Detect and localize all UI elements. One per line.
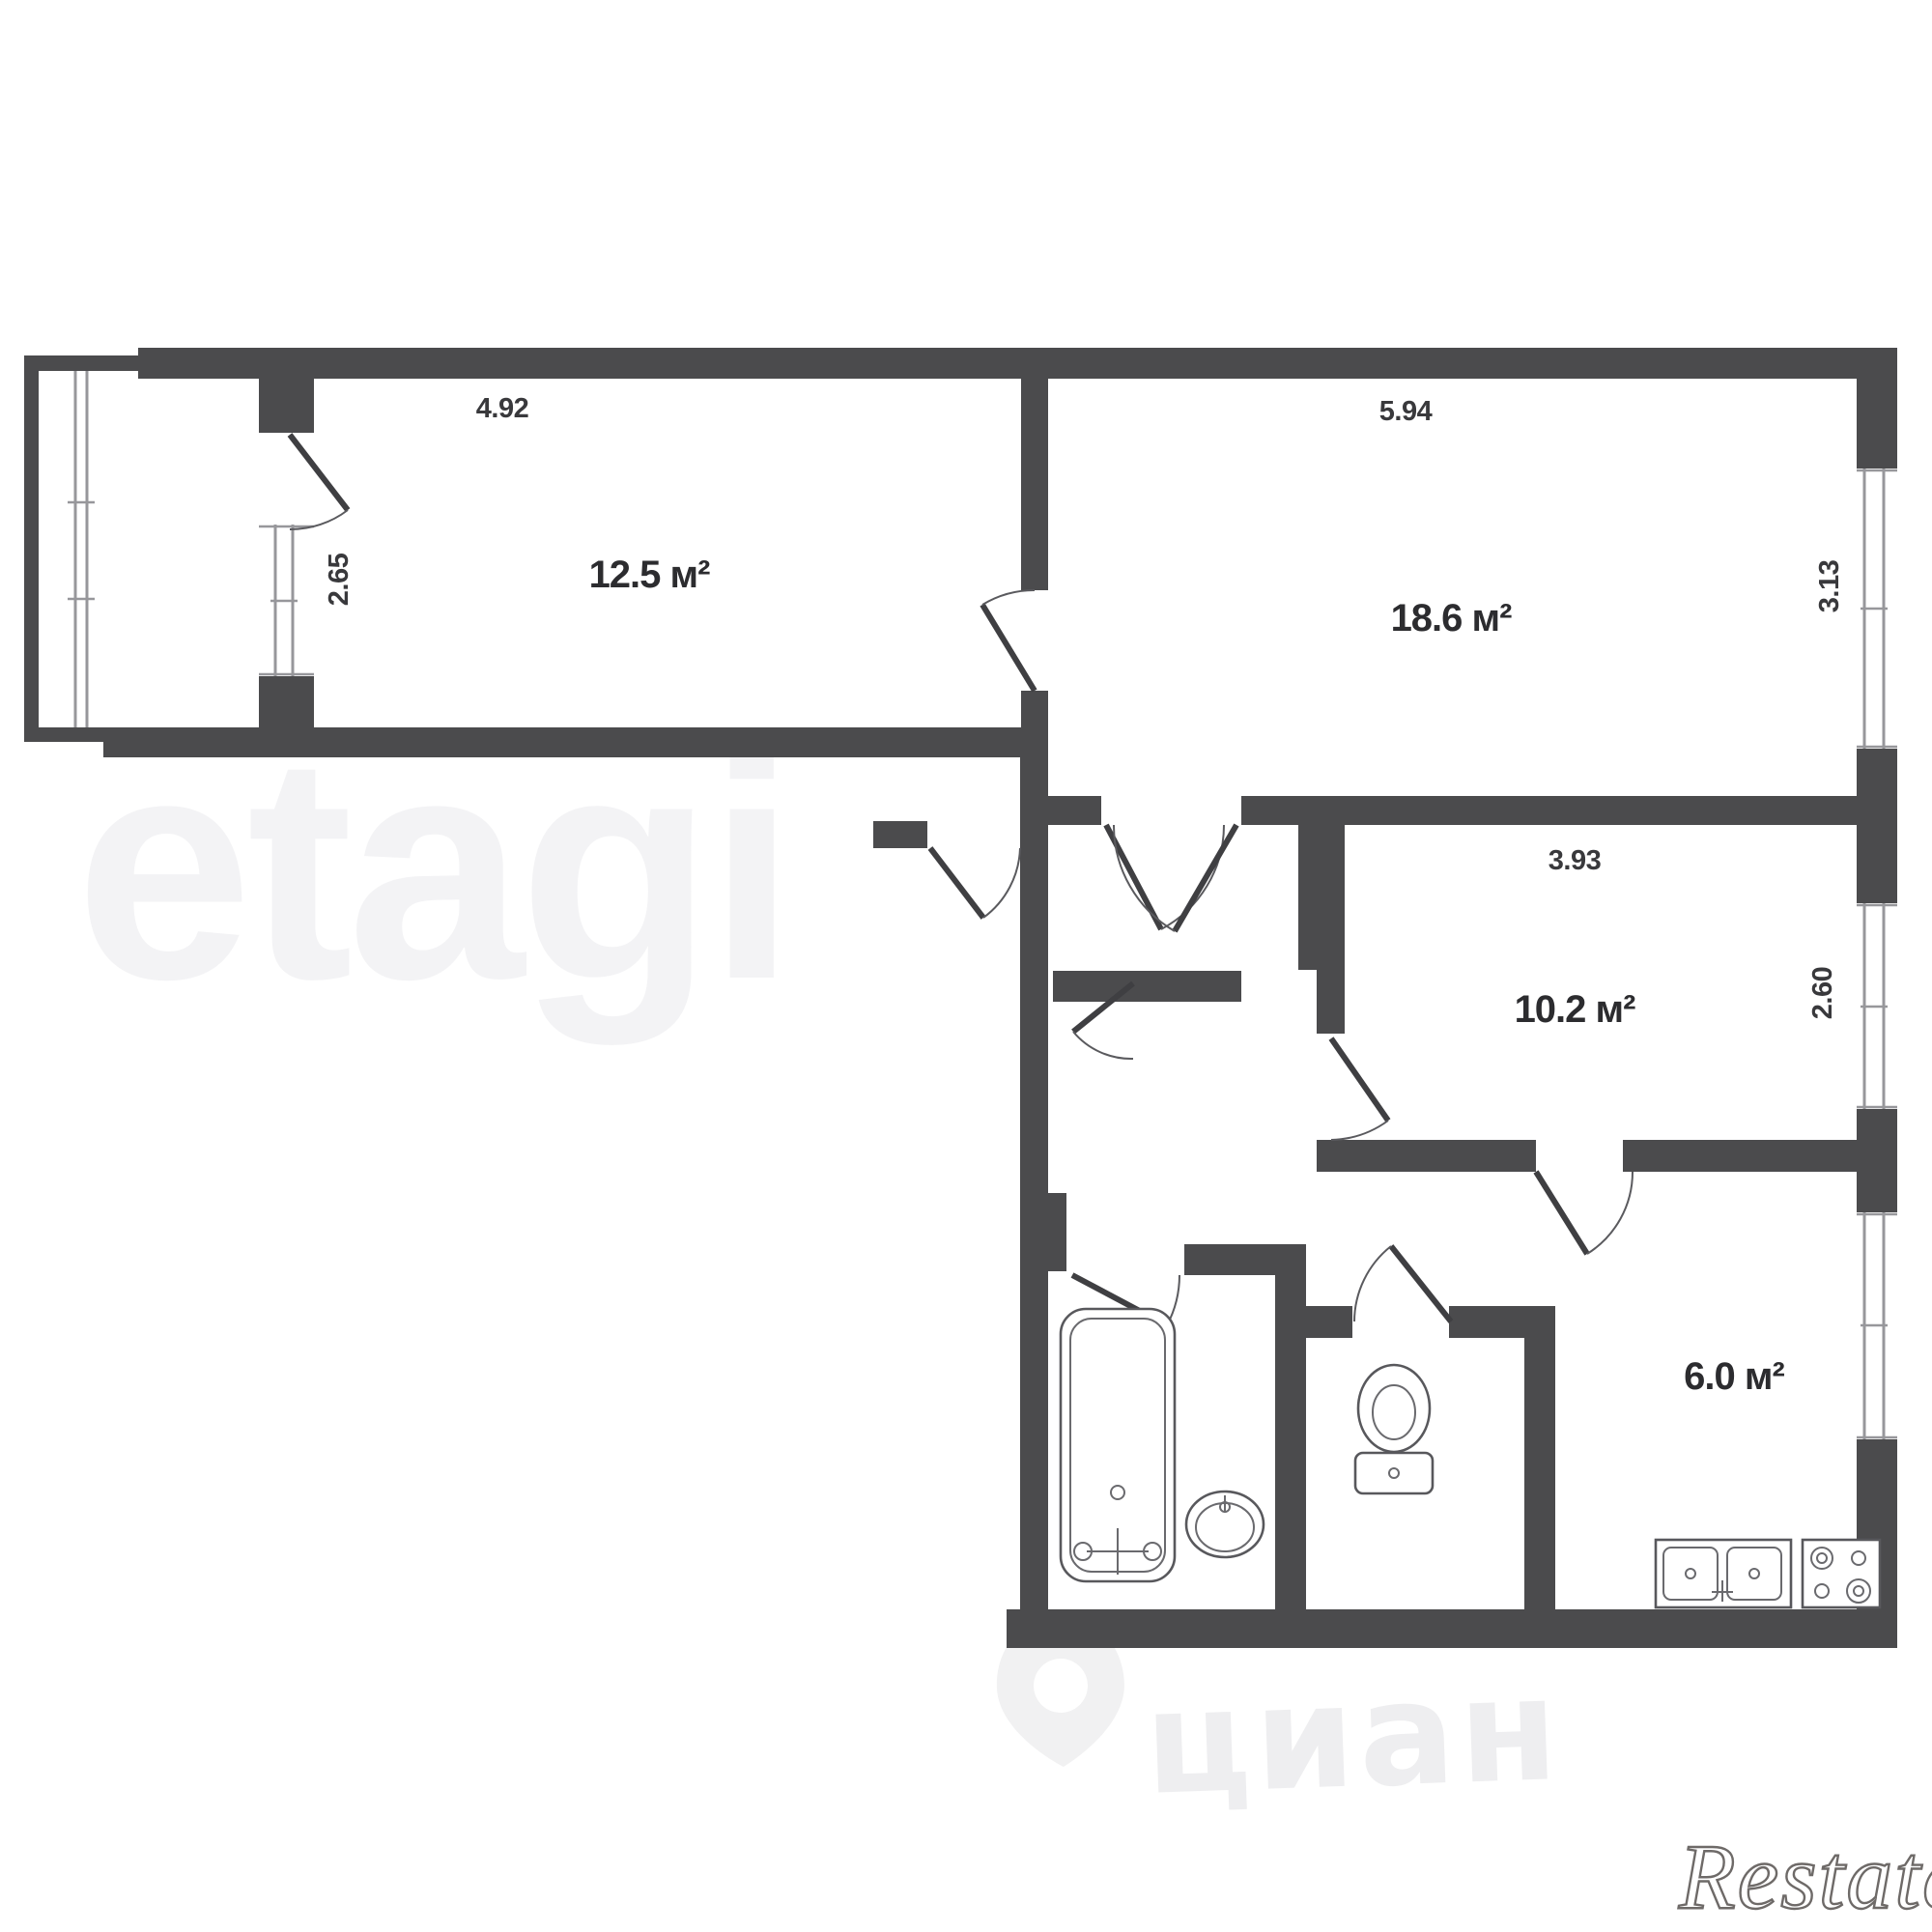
- wall-room10-bottom-left: [1317, 1140, 1536, 1172]
- wall-room18-bottom-right: [1241, 796, 1897, 825]
- dim-2-65: 2.65: [324, 553, 355, 606]
- kitchen-area-label: 6.0 м²: [1684, 1355, 1784, 1398]
- wall-room12-bottom: [103, 727, 1048, 757]
- restate-watermark: Restate: [1678, 1825, 1932, 1928]
- wall-hall-left-pier: [1020, 1193, 1066, 1271]
- wall-bathroom-top: [1184, 1244, 1306, 1275]
- wall-right-seg2: [1857, 749, 1897, 903]
- dim-2-60: 2.60: [1807, 967, 1838, 1019]
- wall-room10-left-upper: [1317, 825, 1345, 1034]
- wall-room12-room18-upper: [1021, 379, 1048, 590]
- wall-balcony-left: [24, 355, 39, 742]
- wall-room18-bottom-left: [1048, 796, 1101, 825]
- wall-top-outer: [138, 348, 1897, 379]
- wall-entry-pier: [873, 821, 927, 848]
- kitchen-sink-icon: [1656, 1540, 1791, 1607]
- room12-area-label: 12.5 м²: [589, 554, 711, 596]
- wall-toilet-right: [1524, 1306, 1555, 1609]
- dim-5-94: 5.94: [1379, 396, 1433, 427]
- floor-plan-svg: etagi циан: [0, 0, 1932, 1932]
- wall-bath-left-lower: [1020, 1271, 1048, 1609]
- wall-right-seg3: [1857, 1109, 1897, 1212]
- wall-balcony-divider-bottom: [259, 676, 314, 741]
- wall-bottom-outer: [1007, 1609, 1897, 1648]
- wall-balcony-top: [24, 355, 138, 371]
- wall-room12-room18-lower: [1021, 691, 1048, 757]
- wall-room10-bottom-right: [1623, 1140, 1897, 1172]
- room10-area-label: 10.2 м²: [1515, 988, 1636, 1031]
- bathtub-icon: [1061, 1309, 1175, 1581]
- wall-balcony-bottom: [24, 727, 103, 742]
- wall-right-seg1: [1857, 348, 1897, 469]
- dim-3-93: 3.93: [1548, 845, 1602, 876]
- stove-icon: [1803, 1540, 1880, 1607]
- floorplan-page: etagi циан: [0, 0, 1932, 1932]
- wall-toilet-top-right: [1449, 1306, 1524, 1338]
- washbasin-icon: [1186, 1492, 1264, 1557]
- wall-bath-toilet-divider: [1275, 1275, 1306, 1609]
- wall-balcony-divider-top: [259, 369, 314, 433]
- dim-4-92: 4.92: [476, 393, 528, 424]
- wall-toilet-top-left: [1306, 1306, 1352, 1338]
- room18-area-label: 18.6 м²: [1391, 597, 1513, 639]
- wall-closet: [1053, 971, 1241, 1002]
- dim-3-13: 3.13: [1814, 559, 1845, 612]
- cian-watermark-text: циан: [1142, 1646, 1564, 1827]
- toilet-icon: [1355, 1365, 1433, 1493]
